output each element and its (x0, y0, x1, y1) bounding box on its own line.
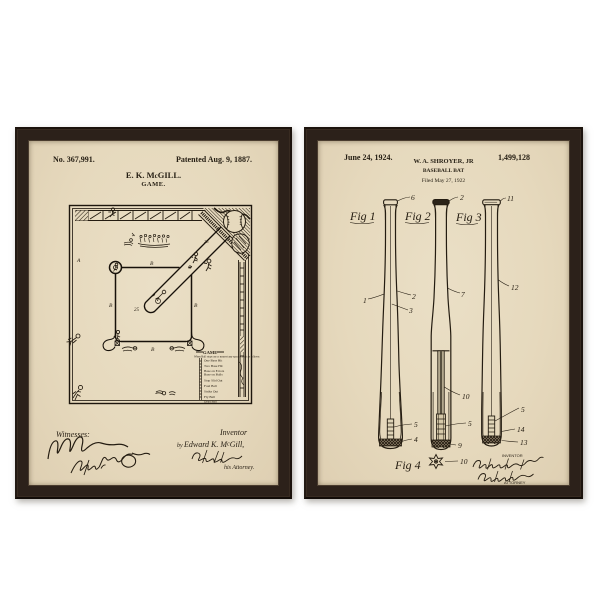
svg-text:13: 13 (520, 438, 528, 447)
svg-text:25: 25 (134, 308, 140, 313)
svg-text:12: 12 (511, 283, 519, 292)
svg-text:6: 6 (411, 193, 415, 202)
svg-text:2: 2 (412, 292, 416, 301)
svg-text:Inventor: Inventor (219, 428, 248, 437)
svg-text:3: 3 (408, 306, 413, 315)
svg-text:Fig 1: Fig 1 (349, 209, 376, 223)
svg-text:by: by (177, 443, 183, 449)
svg-text:Fly Ball: Fly Ball (204, 395, 215, 399)
svg-text:11: 11 (507, 194, 514, 203)
svg-text:his Attorney.: his Attorney. (224, 465, 254, 471)
svg-text:Two Base Hit: Two Base Hit (204, 364, 223, 368)
svg-text:Strike Out: Strike Out (204, 390, 218, 394)
svg-text:INVENTOR: INVENTOR (502, 453, 523, 458)
svg-text:B: B (151, 347, 155, 353)
svg-text:Base on Balls: Base on Balls (204, 373, 223, 377)
svg-text:Dead Ball: Dead Ball (204, 400, 217, 404)
svg-text:26: 26 (204, 239, 209, 244)
svg-text:10: 10 (460, 457, 468, 466)
svg-text:Edward K. McGill,: Edward K. McGill, (183, 440, 244, 449)
svg-text:Fig 2: Fig 2 (404, 209, 431, 223)
svg-text:5: 5 (414, 420, 418, 429)
svg-text:7: 7 (461, 290, 465, 299)
svg-text:14: 14 (517, 425, 525, 434)
svg-text:B: B (109, 303, 113, 309)
svg-text:5: 5 (521, 405, 525, 414)
svg-text:5: 5 (468, 419, 472, 428)
svg-text:10: 10 (462, 392, 470, 401)
svg-text:2: 2 (460, 193, 464, 202)
svg-text:A: A (76, 258, 81, 264)
svg-text:GAME: GAME (203, 350, 217, 355)
svg-text:9: 9 (458, 441, 462, 450)
svg-text:Witnesses:: Witnesses: (56, 430, 90, 439)
svg-text:1: 1 (363, 296, 367, 305)
svg-text:Fig 4: Fig 4 (394, 458, 421, 472)
svg-text:B: B (150, 261, 154, 267)
svg-text:Stop Slid Out: Stop Slid Out (204, 379, 223, 383)
svg-text:Fig 3: Fig 3 (455, 210, 482, 224)
svg-text:B: B (194, 303, 198, 309)
svg-text:One Base Hit: One Base Hit (204, 359, 222, 363)
svg-text:4: 4 (414, 435, 418, 444)
svg-text:Foul Ball: Foul Ball (204, 384, 217, 388)
